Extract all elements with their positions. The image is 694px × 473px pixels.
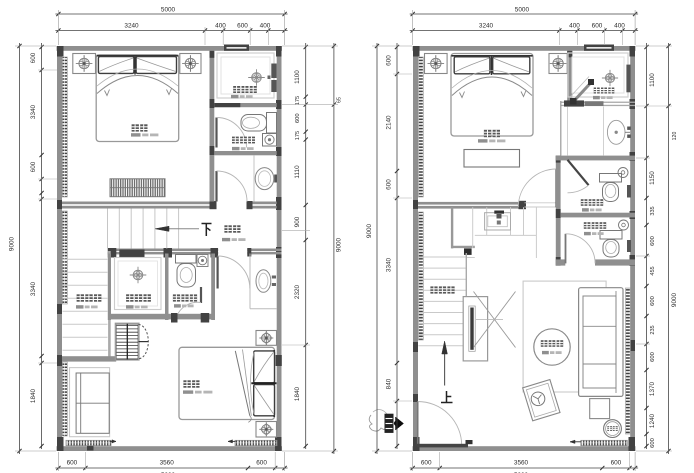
svg-text:3340: 3340: [30, 281, 37, 296]
svg-text:600: 600: [256, 460, 267, 467]
svg-text:1150: 1150: [649, 171, 656, 185]
svg-text:235: 235: [650, 325, 656, 334]
svg-text:1100: 1100: [649, 73, 656, 87]
svg-text:600: 600: [386, 179, 393, 190]
svg-text:400: 400: [614, 23, 625, 30]
svg-text:9000: 9000: [9, 236, 16, 251]
svg-text:120: 120: [672, 132, 678, 141]
svg-text:600: 600: [592, 23, 603, 30]
svg-text:600: 600: [30, 52, 37, 63]
svg-text:600: 600: [30, 161, 37, 172]
svg-text:9000: 9000: [366, 223, 373, 238]
svg-text:1100: 1100: [294, 70, 301, 84]
svg-text:5000: 5000: [515, 7, 530, 14]
svg-text:600: 600: [67, 460, 78, 467]
svg-text:3340: 3340: [30, 104, 37, 119]
svg-text:5000: 5000: [161, 7, 176, 14]
svg-text:3560: 3560: [514, 460, 529, 467]
svg-text:1840: 1840: [30, 388, 37, 403]
svg-text:600: 600: [237, 23, 248, 30]
svg-text:9000: 9000: [336, 237, 343, 252]
svg-text:600: 600: [611, 460, 622, 467]
svg-text:65: 65: [337, 97, 343, 103]
svg-text:3560: 3560: [160, 460, 175, 467]
svg-text:2320: 2320: [294, 284, 301, 299]
svg-text:400: 400: [215, 23, 226, 30]
svg-text:1840: 1840: [294, 386, 301, 401]
svg-text:455: 455: [650, 266, 656, 275]
svg-text:840: 840: [386, 378, 393, 389]
svg-text:600: 600: [421, 460, 432, 467]
svg-text:900: 900: [294, 216, 301, 227]
svg-text:1370: 1370: [649, 381, 656, 396]
svg-text:3240: 3240: [479, 23, 494, 30]
svg-text:1240: 1240: [649, 413, 656, 428]
svg-text:600: 600: [295, 113, 301, 123]
svg-text:600: 600: [650, 352, 656, 362]
svg-text:400: 400: [569, 23, 580, 30]
svg-text:400: 400: [260, 23, 271, 30]
svg-text:175: 175: [295, 96, 301, 105]
svg-text:335: 335: [650, 206, 656, 215]
svg-text:600: 600: [650, 438, 656, 448]
svg-text:175: 175: [295, 131, 301, 140]
svg-text:600: 600: [650, 296, 656, 306]
svg-text:600: 600: [386, 55, 393, 66]
svg-text:1110: 1110: [294, 165, 301, 179]
svg-text:2140: 2140: [386, 115, 393, 130]
svg-text:3340: 3340: [386, 257, 393, 272]
svg-text:3240: 3240: [124, 23, 139, 30]
svg-text:9000: 9000: [671, 292, 678, 307]
svg-text:600: 600: [650, 236, 656, 246]
